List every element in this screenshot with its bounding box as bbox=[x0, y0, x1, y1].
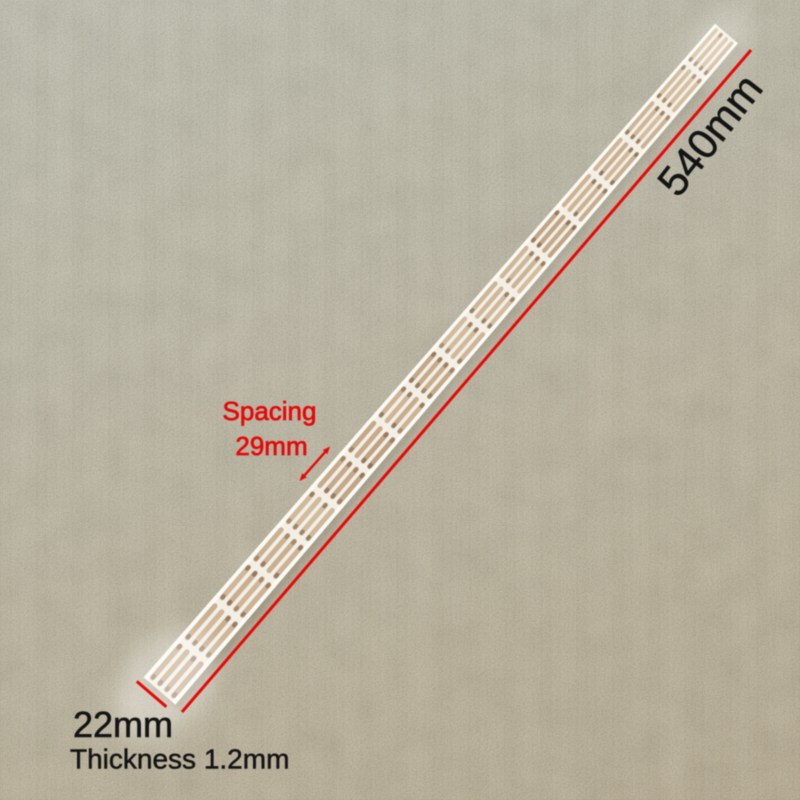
svg-text:Spacing: Spacing bbox=[223, 396, 317, 426]
svg-text:Thickness 1.2mm: Thickness 1.2mm bbox=[70, 744, 289, 775]
svg-text:29mm: 29mm bbox=[235, 431, 307, 461]
svg-text:22mm: 22mm bbox=[73, 704, 173, 745]
